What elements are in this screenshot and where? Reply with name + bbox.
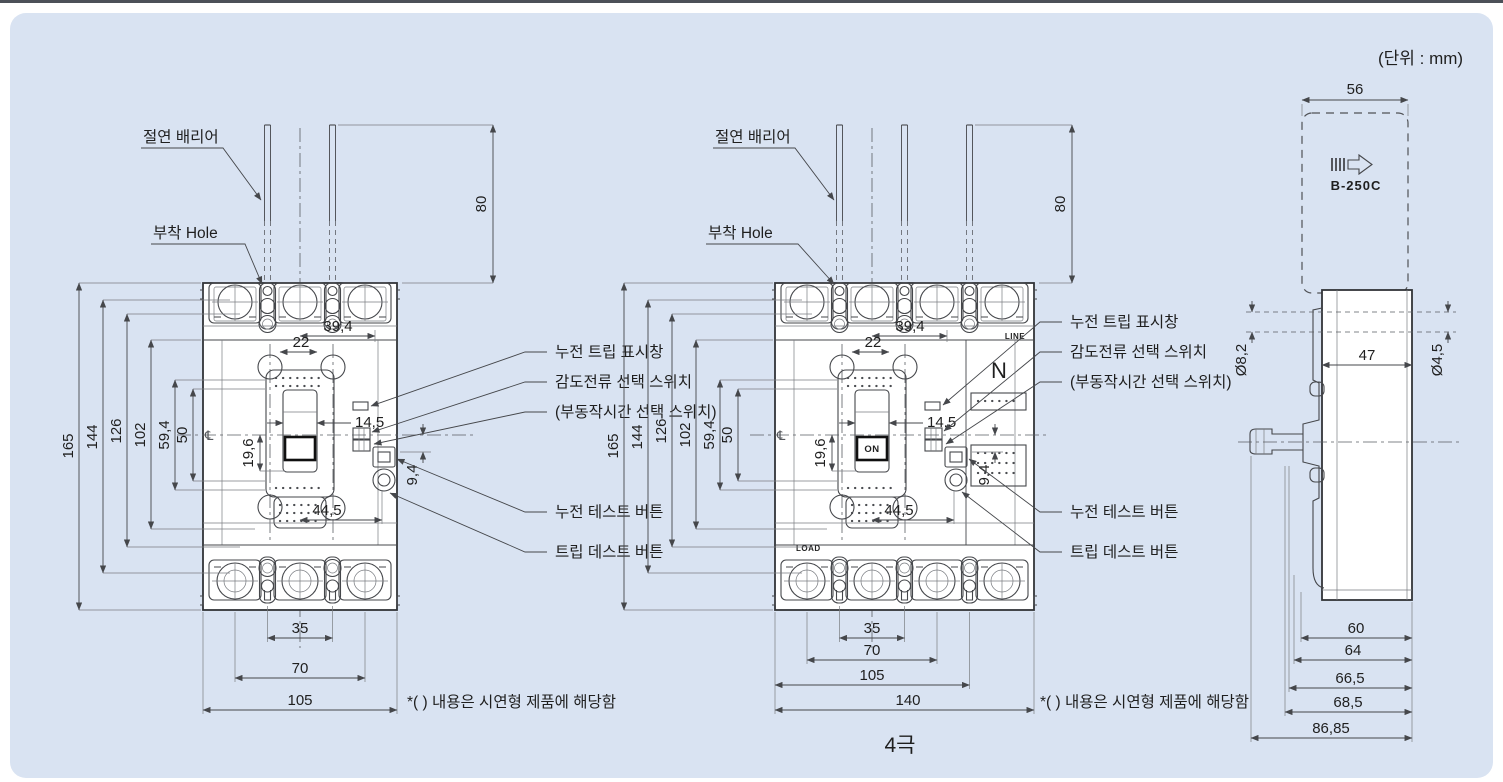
dim-105-label: 105 bbox=[859, 667, 884, 684]
breaker-body-side bbox=[1250, 290, 1412, 600]
on-marking: ON bbox=[864, 444, 879, 455]
dim-60-label: 60 bbox=[1348, 620, 1365, 637]
dim-66-5-label: 66,5 bbox=[1335, 670, 1364, 687]
toggle-handle-side bbox=[1250, 429, 1303, 454]
label-insulation-barrier: 절연 배리어 bbox=[715, 128, 791, 146]
centerline-symbol: ℄ bbox=[776, 428, 786, 443]
dim-47-label: 47 bbox=[1359, 347, 1376, 364]
label-mounting-hole: 부착 Hole bbox=[153, 224, 218, 242]
dim-59-4-label: 59,4 bbox=[156, 420, 173, 449]
caption-4pole: 4극 bbox=[885, 734, 916, 757]
dim-86-85-label: 86,85 bbox=[1312, 720, 1350, 737]
dim-165-label: 165 bbox=[605, 433, 622, 458]
dim-50-label: 50 bbox=[174, 427, 191, 444]
label-mounting-hole: 부착 Hole bbox=[708, 224, 773, 242]
push-arrow-icon bbox=[1332, 155, 1372, 174]
barrier-4pole bbox=[837, 125, 973, 283]
dim-39-4-label: 39,4 bbox=[895, 318, 924, 335]
dim-102-label: 102 bbox=[132, 422, 149, 447]
dim-126-label: 126 bbox=[108, 418, 125, 443]
footnote-3pole: *( ) 내용은 시연형 제품에 해당함 bbox=[407, 693, 616, 711]
dim-35-label: 35 bbox=[864, 620, 881, 637]
dim-14-5-label: 14,5 bbox=[927, 414, 956, 431]
dim-22-label: 22 bbox=[865, 334, 882, 351]
dim-35-label: 35 bbox=[292, 620, 309, 637]
dim-68-5-label: 68,5 bbox=[1333, 694, 1362, 711]
dim-105-label: 105 bbox=[287, 692, 312, 709]
dim-19-6-label: 19,6 bbox=[240, 438, 257, 467]
dim-14-5-label: 14,5 bbox=[355, 414, 384, 431]
dim-44-5-label: 44,5 bbox=[884, 502, 913, 519]
dim-19-6-label: 19,6 bbox=[812, 438, 829, 467]
breaker-body-3pole bbox=[200, 283, 400, 610]
side-view: 56 B-250C Ø8,2 Ø4,5 47 60 bbox=[1160, 30, 1503, 782]
dim-59-4-label: 59,4 bbox=[701, 420, 718, 449]
dim-144-label: 144 bbox=[84, 424, 101, 449]
dim-64-label: 64 bbox=[1345, 642, 1362, 659]
dim-80-label: 80 bbox=[1052, 196, 1069, 213]
dim-hole-8-2-label: Ø8,2 bbox=[1233, 344, 1250, 377]
page-top-rule bbox=[0, 0, 1503, 3]
dim-50-label: 50 bbox=[719, 427, 736, 444]
dim-140-label: 140 bbox=[895, 692, 920, 709]
dim-144-label: 144 bbox=[629, 424, 646, 449]
dim-102-label: 102 bbox=[677, 422, 694, 447]
model-label: B-250C bbox=[1331, 178, 1382, 193]
centerline-symbol: ℄ bbox=[204, 428, 214, 443]
line-marking: LINE bbox=[1005, 332, 1025, 341]
dim-56-label: 56 bbox=[1347, 81, 1364, 98]
dim-22-label: 22 bbox=[293, 334, 310, 351]
dim-hole-4-5-label: Ø4,5 bbox=[1429, 344, 1446, 377]
dim-70-label: 70 bbox=[864, 642, 881, 659]
dim-39-4-label: 39,4 bbox=[323, 318, 352, 335]
dim-80-label: 80 bbox=[473, 196, 490, 213]
dim-165-label: 165 bbox=[60, 433, 77, 458]
label-insulation-barrier: 절연 배리어 bbox=[143, 128, 219, 146]
dim-44-5-label: 44,5 bbox=[312, 502, 341, 519]
dim-126-label: 126 bbox=[653, 418, 670, 443]
barrier-outline-side bbox=[1302, 113, 1408, 293]
dim-70-label: 70 bbox=[292, 660, 309, 677]
